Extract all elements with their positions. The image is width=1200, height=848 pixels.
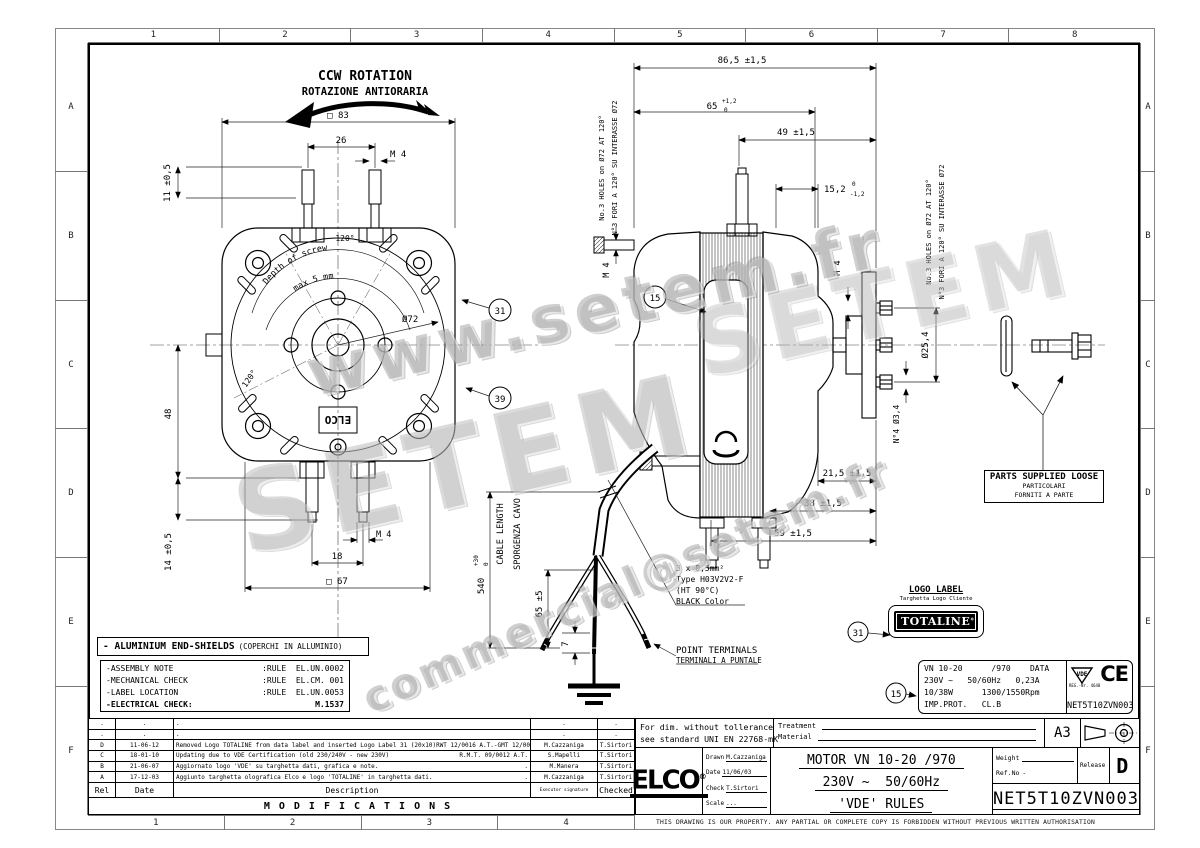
elco-emboss: ELCO — [324, 413, 351, 426]
dim-152-tol-bot: -1,2 — [850, 191, 865, 198]
callout-15: 15 — [650, 294, 661, 304]
material-label: Material — [778, 732, 812, 743]
dim-sq83: □ 83 — [327, 111, 349, 121]
dim-65: 65 — [707, 102, 718, 112]
mod-row-A: A 17-12-03 Aggiunto targhetta olografica… — [89, 771, 634, 782]
rule-label: -LABEL LOCATION — [106, 687, 178, 699]
rule-value: :RULE EL.UN.0053 — [262, 687, 344, 699]
vde-logo-icon: VDE — [1069, 665, 1095, 685]
aluminium-note: - ALUMINIUM END-SHIELDS (COPERCHI IN ALL… — [97, 637, 369, 656]
rule-value: :RULE EL.UN.0002 — [262, 663, 344, 675]
drawn-value: M.Cazzaniga — [726, 754, 767, 762]
ccw-rotation-it: ROTAZIONE ANTIORARIA — [302, 86, 429, 98]
check-value: T.Sirtori — [726, 785, 767, 793]
dim-38: 38 ±1,5 — [804, 499, 842, 509]
mod-row-D: D 11-06-12 Removed Logo TOTALINE from da… — [89, 739, 634, 750]
check-label: Check — [706, 785, 724, 792]
data-line-4: IMP.PROT. CL.B — [924, 699, 1066, 711]
drawn-label: Drawn — [706, 754, 724, 761]
holes-note-en-left: No.3 HOLES on Ø72 AT 120° — [598, 115, 606, 220]
release-value: D — [1109, 748, 1139, 783]
scale-value: ... — [726, 800, 767, 808]
ground-symbol — [568, 654, 620, 703]
deg120-top: 120° — [335, 234, 354, 243]
data-line-2: 230V ~ 50/60Hz 0,23A — [924, 675, 1066, 687]
dim-48: 48 — [164, 409, 174, 420]
treatment-label: Treatment — [778, 721, 816, 732]
dim-n4dia: N°4 Ø3,4 — [891, 405, 901, 444]
weight-refno: Weight Ref.No- — [993, 748, 1078, 783]
rule-value: M.1537 — [315, 699, 344, 711]
rule-label: -MECHANICAL CHECK — [106, 675, 188, 687]
paper-size: A3 — [1045, 719, 1081, 747]
title-line-3: 'VDE' RULES — [830, 797, 932, 813]
dim-540: 540 — [477, 578, 487, 594]
callout-31: 31 — [495, 307, 506, 317]
first-angle-projection-icon — [1081, 721, 1139, 745]
dim-26: 26 — [336, 136, 347, 146]
parts-loose-it2: FORNITI A PARTE — [987, 491, 1101, 500]
dim-m4-bottom: M 4 — [376, 530, 391, 540]
totaline-brand: TOTALINE — [901, 615, 970, 628]
aluminium-note-en: - ALUMINIUM END-SHIELDS — [103, 641, 235, 652]
wire-spec-3: (HT 90°C) — [676, 586, 719, 595]
data-line-1: VN 10-20 /970 DATA — [924, 663, 1066, 675]
scale-label: Scale — [706, 800, 724, 807]
refno-label: Ref.No — [996, 769, 1019, 777]
tolerance-note: For dim. without tollerance see standard… — [636, 719, 774, 747]
title-line-1: MOTOR VN 10-20 /970 — [799, 753, 964, 769]
logo-label-subtitle: Targhetta Logo Cliente — [888, 596, 984, 602]
dim-m4-right: M 4 — [833, 260, 843, 275]
modifications-table: . . . . . . . . . . D 11-06-12 Removed L… — [88, 718, 635, 815]
copyright-disclaimer: THIS DRAWING IS OUR PROPERTY. ANY PARTIA… — [656, 819, 1095, 826]
elco-logo: ELCO® — [636, 748, 703, 814]
dim-215: 21,5 ±1,5 — [823, 469, 872, 479]
cable-length-it: SPORGENZA CAVO — [513, 498, 523, 570]
dim-86: 86,5 ±1,5 — [718, 56, 767, 66]
mod-row-C: C 18-01-10 Updating due to VDE Certifica… — [89, 750, 634, 761]
holes-note-it-left: N°3 FORI A 120° SU INTERASSE Ø72 — [611, 101, 619, 236]
dim-152-tol-top: 0 — [852, 181, 856, 188]
drawing-sheet: 1 2 3 4 5 6 7 8 1 2 3 4 A B C D E F A B … — [0, 0, 1200, 848]
data-label-code: NET5T10ZVN003 — [1067, 701, 1132, 711]
logo-label-title: LOGO LABEL — [888, 585, 984, 595]
side-bottom-studs — [700, 518, 776, 568]
rule-label: -ASSEMBLY NOTE — [106, 663, 173, 675]
data-label-marks: VDE CE REG.-Nr. 4648 NET5T10ZVN003 — [1067, 661, 1132, 713]
callout-15-label: 15 — [891, 690, 902, 700]
dim-65-tol-bot: 0 — [724, 107, 728, 114]
ccw-rotation-texts: CCW ROTATION ROTAZIONE ANTIORARIA — [302, 69, 429, 98]
point-terminals-en: POINT TERMINALS — [676, 646, 757, 656]
dim-65-tol-top: +1,2 — [722, 98, 737, 105]
parts-supplied-loose-box: PARTS SUPPLIED LOOSE PARTICOLARI FORNITI… — [984, 470, 1104, 503]
drawing-number: NET5T10ZVN003 — [993, 784, 1139, 814]
motor-data-label: VN 10-20 /970 DATA 230V ~ 50/60Hz 0,23A … — [918, 660, 1133, 714]
release-cell: Release D — [1078, 748, 1139, 783]
dim-dia72: Ø72 — [402, 314, 418, 325]
weight-label: Weight — [996, 754, 1019, 762]
dim-sq67: □ 67 — [326, 577, 348, 587]
mod-row: . . . . . — [89, 719, 634, 729]
callout-39: 39 — [495, 395, 506, 405]
dim-14: 14 ±0,5 — [164, 533, 174, 571]
release-label: Release — [1080, 762, 1105, 769]
front-view — [150, 140, 540, 640]
side-left-stud — [594, 237, 634, 253]
logo-label: LOGO LABEL Targhetta Logo Cliente TOTALI… — [888, 585, 984, 638]
cable-length-en: CABLE LENGTH — [496, 503, 506, 564]
drawing-title: MOTOR VN 10-20 /970 230V ~ 50/60Hz 'VDE'… — [771, 748, 993, 814]
holes-note-en-right: No.3 HOLES on Ø72 AT 120° — [925, 179, 933, 284]
holes-note-it-right: N°3 FORI A 120° SU INTERASSE Ø72 — [938, 165, 946, 300]
projection-symbol — [1081, 719, 1139, 747]
aluminium-note-it: (COPERCHI IN ALLUMINIO) — [239, 642, 343, 651]
dim-540-tol-top: +30 — [473, 555, 480, 566]
date-value: 11/06/03 — [722, 769, 766, 777]
rules-box: -ASSEMBLY NOTE:RULE EL.UN.0002 -MECHANIC… — [100, 660, 350, 712]
dim-m4-left: M 4 — [602, 262, 612, 277]
drawing-info: DrawnM.Cazzaniga Date11/06/03 CheckT.Sir… — [703, 748, 771, 814]
dim-540-tol-bot: 0 — [483, 562, 490, 566]
data-label-values: VN 10-20 /970 DATA 230V ~ 50/60Hz 0,23A … — [919, 661, 1067, 713]
front-top-studs — [292, 170, 391, 242]
refno-value: - — [1022, 769, 1074, 777]
callout-31-label: 31 — [853, 629, 864, 639]
dim-11: 11 ±0,5 — [163, 164, 173, 202]
totaline-label: TOTALINE® — [888, 605, 984, 638]
data-line-3: 10/38W 1300/1550Rpm — [924, 687, 1066, 699]
vde-reg-number: REG.-Nr. 4648 — [1069, 683, 1100, 688]
ce-mark: CE — [1100, 662, 1128, 686]
dim-65-5: 65 ±5 — [535, 590, 545, 617]
point-terminals-it: TERMINALI A PUNTALE — [676, 656, 762, 665]
dim-dia254: Ø25,4 — [920, 331, 931, 358]
title-block: For dim. without tollerance see standard… — [635, 718, 1140, 815]
cable — [542, 448, 655, 654]
mod-row: . . . . . — [89, 729, 634, 740]
dim-7: 7 — [561, 641, 571, 646]
wire-spec-2: Type H03V2V2-F — [676, 575, 744, 584]
title-line-2: 230V ~ 50/60Hz — [815, 775, 948, 791]
wire-spec-4: BLACK Color — [676, 597, 729, 606]
rule-value: :RULE EL.CM. 001 — [262, 675, 344, 687]
front-bottom-studs — [300, 462, 375, 522]
dim-m4-top: M 4 — [390, 150, 406, 160]
parts-loose-title: PARTS SUPPLIED LOOSE — [987, 473, 1101, 482]
rule-label: -ELECTRICAL CHECK: — [106, 699, 193, 711]
dim-18: 18 — [332, 552, 343, 562]
date-label: Date — [706, 769, 720, 776]
dim-152: 15,2 — [824, 185, 846, 195]
treatment-material: Treatment Material — [774, 719, 1045, 747]
side-top-stud — [727, 168, 757, 236]
wire-spec-1: 3 x 0,5mm² — [676, 564, 724, 573]
modifications-title: MODIFICATIONS — [89, 797, 634, 814]
mod-row-B: B 21-06-07 Aggiornato logo 'VDE' su targ… — [89, 761, 634, 772]
mod-header-row: Rel Date Description Executor signature … — [89, 782, 634, 797]
side-view — [542, 168, 1105, 703]
ccw-rotation-arrow — [285, 100, 440, 128]
dim-59: 59 ±1,5 — [774, 529, 812, 539]
svg-text:VDE: VDE — [1077, 671, 1088, 678]
deg120-left: 120° — [240, 368, 258, 389]
parts-loose-it1: PARTICOLARI — [987, 482, 1101, 491]
ccw-rotation-en: CCW ROTATION — [318, 69, 412, 84]
loose-parts — [1001, 316, 1091, 472]
dim-49: 49 ±1,5 — [777, 128, 815, 138]
